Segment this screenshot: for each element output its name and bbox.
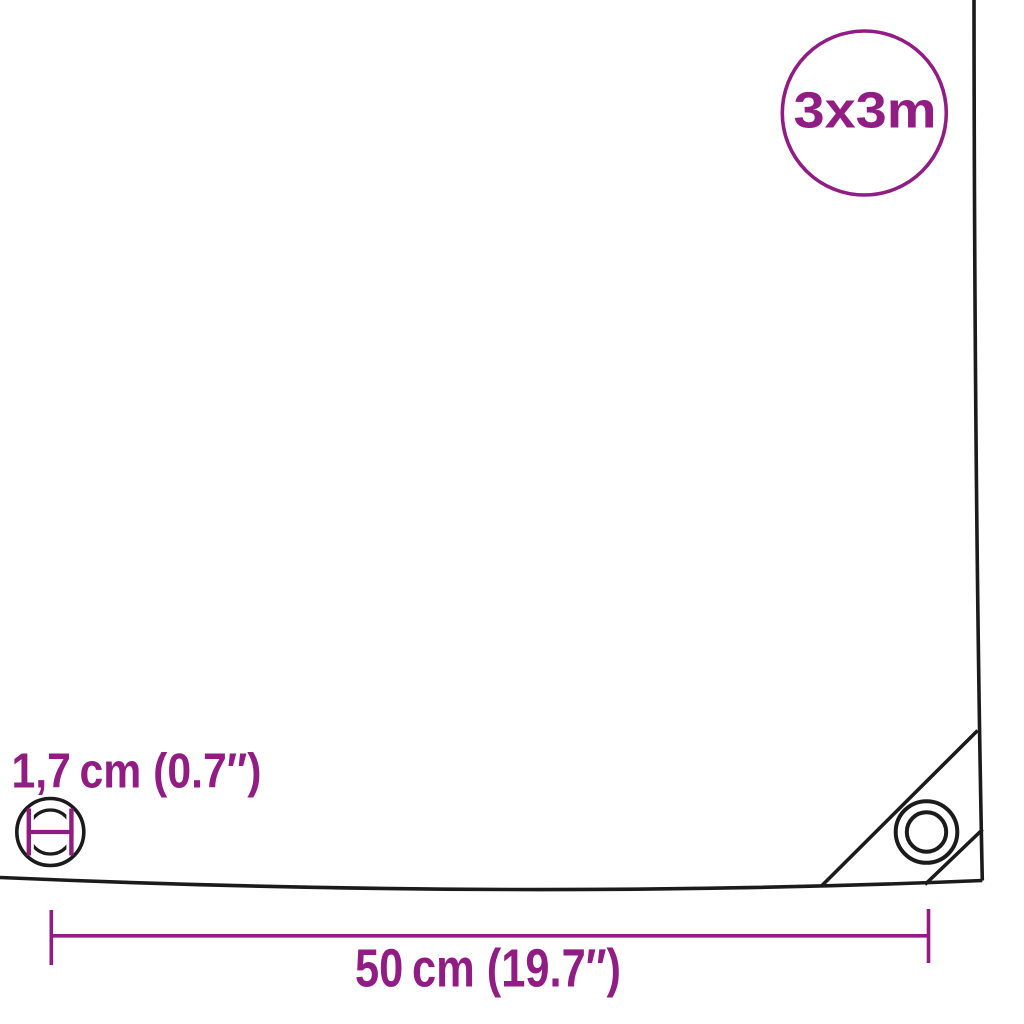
svg-text:50 cm (19.7″): 50 cm (19.7″): [355, 940, 621, 999]
svg-text:3x3m: 3x3m: [794, 82, 937, 139]
svg-text:1,7 cm (0.7″): 1,7 cm (0.7″): [12, 745, 262, 799]
